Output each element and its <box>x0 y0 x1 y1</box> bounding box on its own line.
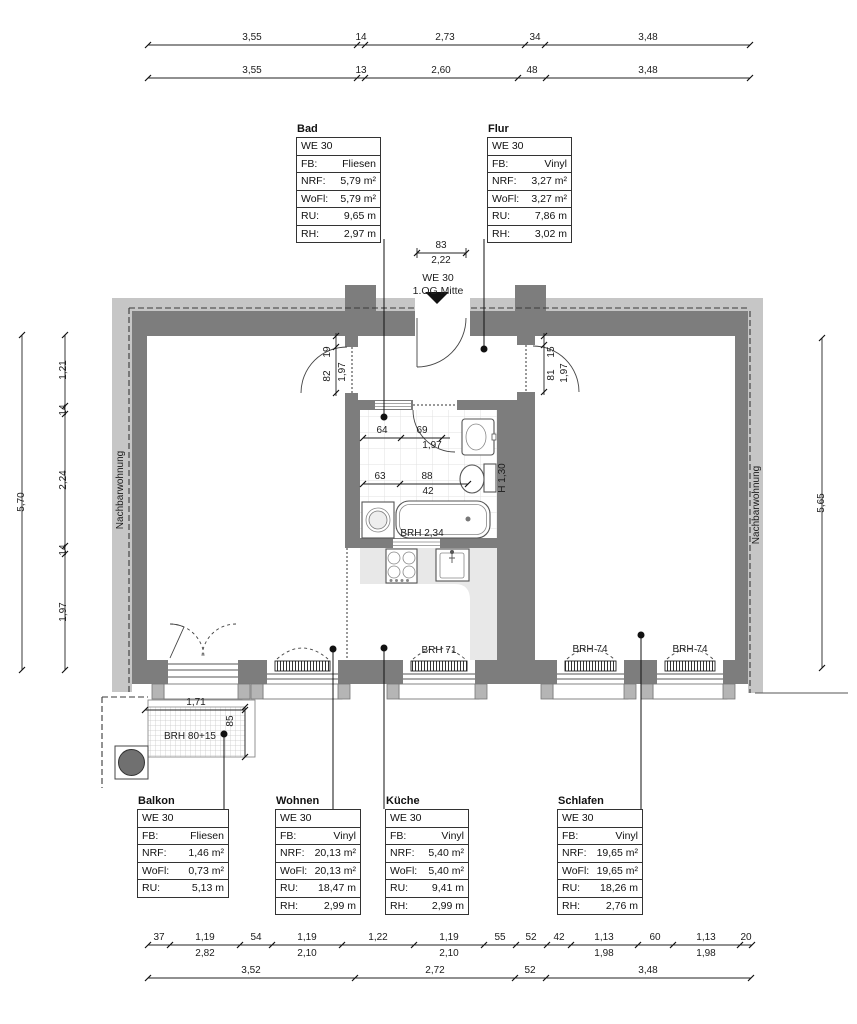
room-table-kueche: Küche WE 30 FB:VinylNRF:5,40 m²WoFl:5,40… <box>385 795 469 915</box>
dim-label: 55 <box>494 933 505 943</box>
dim-label: 2,10 <box>439 949 458 959</box>
dim-label: 88 <box>421 472 432 482</box>
dim-label: 1,97 <box>422 441 441 451</box>
table-row: RU:7,86 m <box>488 207 571 225</box>
dim-label: 1,22 <box>368 933 387 943</box>
dim-label: 2,82 <box>195 949 214 959</box>
dim-label: 37 <box>153 933 164 943</box>
dim-label: 2,72 <box>425 966 444 976</box>
table-row: RH:2,76 m <box>558 897 642 915</box>
dim-label: 1,21 <box>59 360 69 379</box>
dim-label: 1,13 <box>594 933 613 943</box>
dim-label: 1,97 <box>59 602 69 621</box>
room-table-title: Schlafen <box>558 795 643 807</box>
dim-label: 20 <box>740 933 751 943</box>
table-row: RH:3,02 m <box>488 225 571 243</box>
dim-label: H 1,30 <box>498 463 508 492</box>
dim-label: 1,98 <box>594 949 613 959</box>
table-row: NRF:5,79 m² <box>297 172 380 190</box>
dim-label: 52 <box>524 966 535 976</box>
brh-label-schlafen-2: BRH 74 <box>672 645 707 655</box>
dim-label: 34 <box>529 33 540 43</box>
floor-label: 1.OG Mitte <box>413 286 464 297</box>
radiator <box>565 661 616 671</box>
dim-label: 1,97 <box>338 362 348 381</box>
table-row: WE 30 <box>386 810 468 827</box>
dim-label: 19 <box>323 346 333 357</box>
table-row: RH:2,97 m <box>297 225 380 243</box>
brh-label-schlafen-1: BRH 74 <box>572 645 607 655</box>
table-row: NRF:1,46 m² <box>138 844 228 862</box>
radiator <box>665 661 715 671</box>
dim-label: 3,55 <box>242 66 261 76</box>
dim-label: 2,73 <box>435 33 454 43</box>
table-row: WoFl:0,73 m² <box>138 862 228 880</box>
table-row: NRF:3,27 m² <box>488 172 571 190</box>
dim-label: 48 <box>526 66 537 76</box>
room-flur <box>358 336 517 400</box>
table-row: RU:18,26 m <box>558 879 642 897</box>
dim-label: 60 <box>649 933 660 943</box>
brh-label-balkon: BRH 80+15 <box>164 732 216 742</box>
room-table-title: Bad <box>297 123 381 135</box>
neighbor-label-left: Nachbarwohnung <box>116 451 126 529</box>
balcony <box>102 697 255 788</box>
table-row: FB:Vinyl <box>386 827 468 845</box>
stove <box>386 549 417 583</box>
dim-label: 81 <box>547 369 557 380</box>
dim-label: 5,70 <box>17 492 27 511</box>
table-row: RU:9,41 m <box>386 879 468 897</box>
wall-pillar-left <box>345 285 376 311</box>
table-row: NRF:19,65 m² <box>558 844 642 862</box>
table-row: WoFl:3,27 m² <box>488 190 571 208</box>
table-row: WE 30 <box>138 810 228 827</box>
dim-label: 2,22 <box>431 256 450 266</box>
dim-label: 1,13 <box>696 933 715 943</box>
dim-label: 2,10 <box>297 949 316 959</box>
dim-label: 1,19 <box>297 933 316 943</box>
dim-label: 5,65 <box>817 493 827 512</box>
unit-label: WE 30 <box>422 273 454 284</box>
table-row: FB:Fliesen <box>297 155 380 173</box>
table-row: NRF:5,40 m² <box>386 844 468 862</box>
room-table-bad: Bad WE 30 FB:FliesenNRF:5,79 m²WoFl:5,79… <box>296 123 381 243</box>
dim-label: 2,60 <box>431 66 450 76</box>
table-row: RU:18,47 m <box>276 879 360 897</box>
dim-label: 3,48 <box>638 66 657 76</box>
room-table-wohnen: Wohnen WE 30 FB:VinylNRF:20,13 m²WoFl:20… <box>275 795 361 915</box>
dim-label: 3,48 <box>638 966 657 976</box>
neighbor-label-right: Nachbarwohnung <box>752 466 762 544</box>
room-table-title: Flur <box>488 123 572 135</box>
dim-label: 15 <box>547 346 557 357</box>
room-table-title: Wohnen <box>276 795 361 807</box>
room-table-title: Balkon <box>138 795 229 807</box>
rooms <box>147 336 735 660</box>
dim-label: 83 <box>435 241 446 251</box>
table-row: WE 30 <box>297 138 380 155</box>
dim-label: 69 <box>416 426 427 436</box>
dim-label: 13 <box>355 66 366 76</box>
table-row: FB:Fliesen <box>138 827 228 845</box>
room-table-schlafen: Schlafen WE 30 FB:VinylNRF:19,65 m²WoFl:… <box>557 795 643 915</box>
downpipe <box>119 750 145 776</box>
dim-label: 85 <box>226 715 236 726</box>
dim-label: 1,19 <box>439 933 458 943</box>
table-row: RU:9,65 m <box>297 207 380 225</box>
brh-label-kueche: BRH 71 <box>421 646 456 656</box>
radiator <box>411 661 467 671</box>
table-row: WoFl:19,65 m² <box>558 862 642 880</box>
entrance-opening <box>415 298 470 336</box>
toilet-tank <box>484 464 496 492</box>
room-table-flur: Flur WE 30 FB:VinylNRF:3,27 m²WoFl:3,27 … <box>487 123 572 243</box>
dim-label: 54 <box>250 933 261 943</box>
dim-label: 64 <box>376 426 387 436</box>
table-row: FB:Vinyl <box>276 827 360 845</box>
dim-label: 1,19 <box>195 933 214 943</box>
dim-label: 3,48 <box>638 33 657 43</box>
dim-label: 1,98 <box>696 949 715 959</box>
floor-plan-page: 3,55 14 2,73 34 3,48 3,55 13 2,60 48 3,4… <box>0 0 857 1024</box>
toilet <box>460 465 484 493</box>
dim-label: 14 <box>355 33 366 43</box>
table-row: FB:Vinyl <box>488 155 571 173</box>
table-row: WoFl:5,40 m² <box>386 862 468 880</box>
dim-label: 14 <box>59 544 69 555</box>
dim-label: 2,24 <box>59 470 69 489</box>
radiator <box>275 661 330 671</box>
table-row: WE 30 <box>276 810 360 827</box>
room-table-balkon: Balkon WE 30 FB:FliesenNRF:1,46 m²WoFl:0… <box>137 795 229 898</box>
table-row: RH:2,99 m <box>276 897 360 915</box>
table-row: RH:2,99 m <box>386 897 468 915</box>
table-row: WE 30 <box>488 138 571 155</box>
table-row: RU:5,13 m <box>138 879 228 897</box>
table-row: FB:Vinyl <box>558 827 642 845</box>
dim-label: 42 <box>422 487 433 497</box>
table-row: WoFl:5,79 m² <box>297 190 380 208</box>
room-table-title: Küche <box>386 795 469 807</box>
dim-label: 1,71 <box>186 698 205 708</box>
dim-label: 3,52 <box>241 966 260 976</box>
table-row: WoFl:20,13 m² <box>276 862 360 880</box>
dim-label: 42 <box>553 933 564 943</box>
table-row: WE 30 <box>558 810 642 827</box>
dim-label: 1,97 <box>560 363 570 382</box>
brh-label-tub: BRH 2,34 <box>400 529 443 539</box>
dim-label: 3,55 <box>242 33 261 43</box>
dim-label: 82 <box>323 370 333 381</box>
wall-pillar-right <box>515 285 546 311</box>
dim-label: 52 <box>525 933 536 943</box>
dim-label: 63 <box>374 472 385 482</box>
table-row: NRF:20,13 m² <box>276 844 360 862</box>
room-schlafen <box>535 336 735 660</box>
room-wohnen <box>147 336 345 660</box>
dim-label: 14 <box>59 404 69 415</box>
